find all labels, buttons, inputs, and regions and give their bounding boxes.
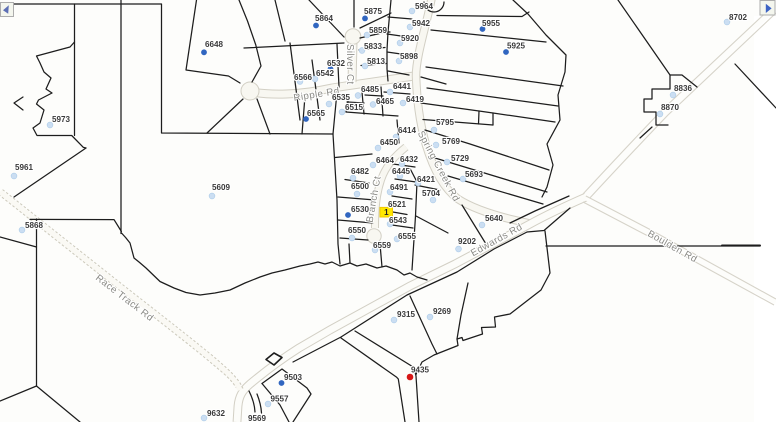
svg-text:6532: 6532 — [327, 59, 346, 68]
svg-text:5640: 5640 — [485, 214, 504, 223]
svg-text:6566: 6566 — [294, 73, 313, 82]
svg-text:6535: 6535 — [332, 93, 351, 102]
svg-text:6465: 6465 — [376, 97, 395, 106]
svg-text:6542: 6542 — [316, 69, 335, 78]
svg-text:6432: 6432 — [400, 155, 419, 164]
svg-text:5875: 5875 — [364, 7, 383, 16]
svg-text:6550: 6550 — [348, 226, 367, 235]
svg-text:5920: 5920 — [401, 34, 420, 43]
svg-text:8836: 8836 — [674, 84, 693, 93]
svg-text:6421: 6421 — [417, 175, 436, 184]
svg-text:6419: 6419 — [406, 95, 425, 104]
svg-text:5973: 5973 — [52, 115, 71, 124]
svg-text:6648: 6648 — [205, 40, 224, 49]
svg-text:9435: 9435 — [411, 366, 430, 375]
svg-text:6414: 6414 — [398, 126, 417, 135]
svg-text:6441: 6441 — [393, 82, 412, 91]
svg-text:9202: 9202 — [458, 237, 477, 246]
svg-text:5964: 5964 — [415, 2, 434, 11]
svg-text:5961: 5961 — [15, 163, 34, 172]
svg-text:6500: 6500 — [351, 182, 370, 191]
svg-text:6521: 6521 — [388, 200, 407, 209]
svg-text:6530: 6530 — [351, 205, 370, 214]
svg-text:5609: 5609 — [212, 183, 231, 192]
svg-text:5729: 5729 — [451, 154, 470, 163]
svg-text:Silver Ct: Silver Ct — [344, 44, 355, 85]
svg-text:9632: 9632 — [207, 409, 226, 418]
svg-text:6565: 6565 — [307, 109, 326, 118]
svg-text:5813: 5813 — [367, 57, 386, 66]
svg-text:5955: 5955 — [482, 19, 501, 28]
svg-text:9557: 9557 — [271, 395, 290, 404]
svg-text:6515: 6515 — [345, 103, 364, 112]
svg-text:6555: 6555 — [398, 232, 417, 241]
svg-text:9503: 9503 — [284, 373, 303, 382]
svg-text:6464: 6464 — [376, 156, 395, 165]
svg-text:5833: 5833 — [364, 42, 383, 51]
svg-text:5942: 5942 — [412, 19, 431, 28]
svg-text:6485: 6485 — [361, 85, 380, 94]
svg-text:5859: 5859 — [369, 26, 388, 35]
svg-text:6450: 6450 — [380, 138, 399, 147]
svg-text:9569: 9569 — [248, 414, 267, 422]
svg-text:5898: 5898 — [400, 52, 419, 61]
svg-text:8870: 8870 — [661, 103, 680, 112]
svg-text:8702: 8702 — [729, 13, 748, 22]
svg-text:6543: 6543 — [389, 216, 408, 225]
svg-text:5868: 5868 — [25, 221, 44, 230]
svg-text:5795: 5795 — [436, 118, 455, 127]
svg-text:9315: 9315 — [397, 310, 416, 319]
svg-text:6559: 6559 — [373, 241, 392, 250]
svg-text:5693: 5693 — [465, 170, 484, 179]
svg-text:5864: 5864 — [315, 14, 334, 23]
svg-text:9269: 9269 — [433, 307, 452, 316]
svg-text:5925: 5925 — [507, 42, 526, 51]
svg-text:6445: 6445 — [392, 167, 411, 176]
svg-text:5769: 5769 — [442, 137, 461, 146]
svg-text:5704: 5704 — [422, 189, 441, 198]
svg-text:6491: 6491 — [390, 183, 409, 192]
svg-text:6482: 6482 — [351, 167, 370, 176]
